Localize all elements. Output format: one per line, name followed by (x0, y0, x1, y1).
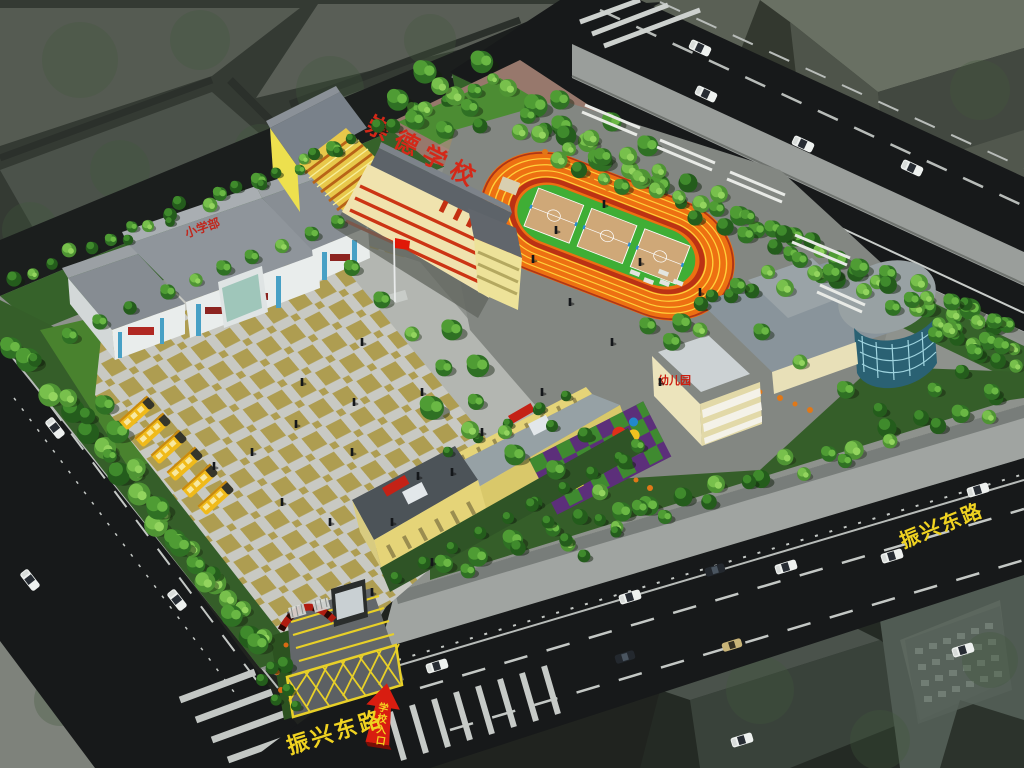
svg-text:口: 口 (375, 735, 387, 747)
